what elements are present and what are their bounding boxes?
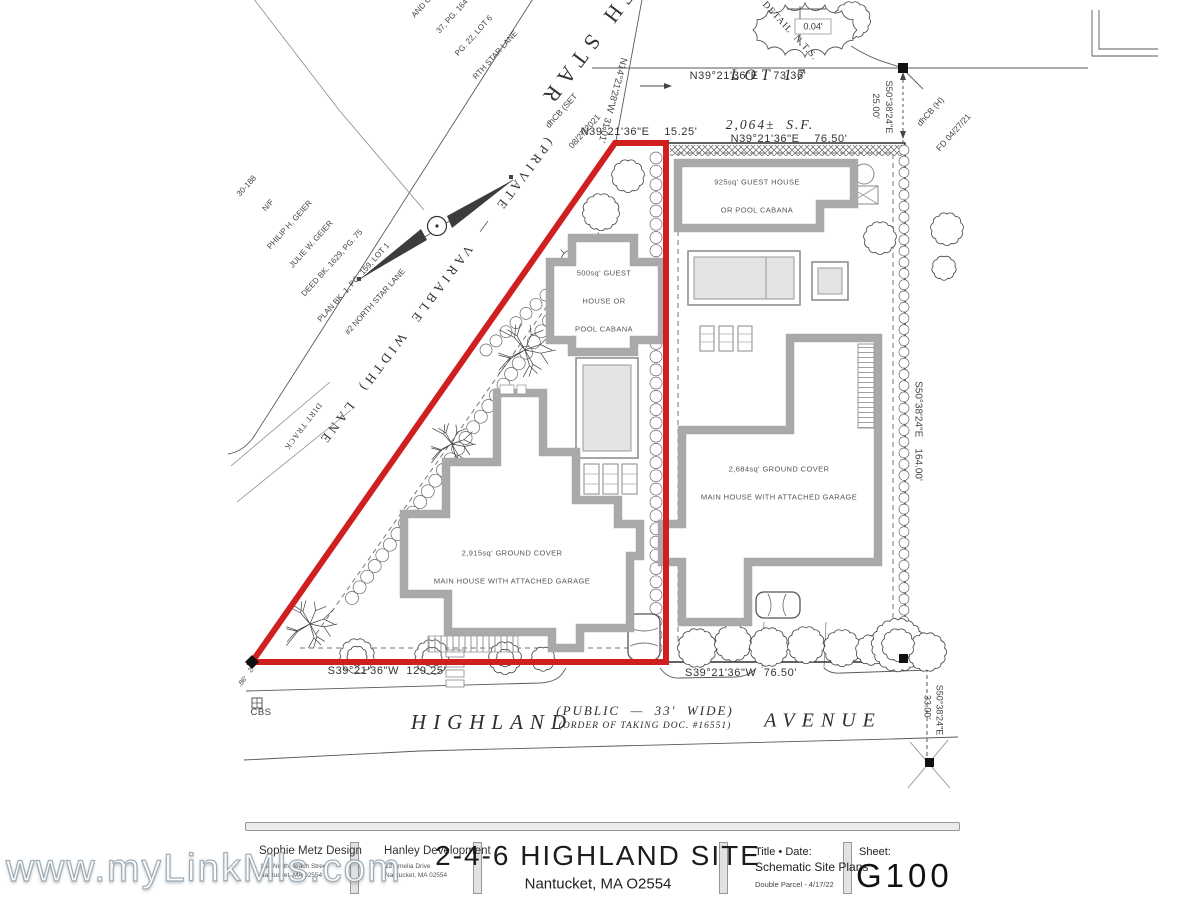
- highland-taking-note: (ORDER OF TAKING DOC. #16551): [559, 722, 732, 732]
- bearing-right-upper: S50°38'24"E: [883, 80, 893, 133]
- tree-icon: [612, 160, 645, 193]
- stairs: [858, 344, 874, 428]
- bearing-bottom-left: S39°21'36"W 129.25': [328, 666, 447, 678]
- bearing-top-right: N39°21'36"E 76.50': [731, 134, 848, 146]
- main-right-line: MAIN HOUSE WITH ATTACHED GARAGE: [701, 492, 857, 501]
- lounge-chair: [738, 326, 752, 351]
- main-left-line: 2,915sq' GROUND COVER: [434, 548, 590, 557]
- bearing-top: N39°21'36"E 73.36': [690, 71, 807, 83]
- main-house-left-label: 2,915sq' GROUND COVER MAIN HOUSE WITH AT…: [434, 530, 590, 605]
- highland-width-note: (PUBLIC — 33' WIDE): [556, 704, 734, 718]
- lot17-area: 2,064± S.F.: [726, 118, 815, 132]
- dist-right-upper: 25.00': [870, 93, 880, 119]
- tree-icon: [932, 256, 956, 280]
- watermark: www.myLinkMls.com: [6, 847, 402, 891]
- title-date-line2: Double Parcel - 4/17/22: [755, 880, 834, 889]
- tree-icon: [583, 194, 620, 231]
- detail-dimension: 0.04': [803, 22, 822, 31]
- walk-pad: [446, 680, 464, 687]
- guest-left-line: POOL CABANA: [575, 324, 633, 333]
- neighbor-west-line: JULIE W. GEIER: [273, 203, 349, 286]
- title-date-label: Title • Date:: [755, 846, 812, 858]
- lounge-chair: [700, 326, 714, 351]
- titleblock-top-bar: [245, 822, 960, 831]
- parking-strip: [428, 636, 518, 652]
- lounge-chair: [719, 326, 733, 351]
- title-date-line1: Schematic Site Plans: [755, 860, 868, 874]
- monument-set-line1: dhCB (SET: [543, 91, 579, 130]
- guest-right-line: OR POOL CABANA: [714, 205, 800, 214]
- bearing-right-lower: S50°38'24"E: [934, 685, 943, 736]
- tree-icon: [824, 630, 861, 667]
- lot17-block: LOT 17 2,064± S.F.: [726, 34, 815, 166]
- main-left-line: MAIN HOUSE WITH ATTACHED GARAGE: [434, 576, 590, 585]
- guest-house-right-label: 925sq' GUEST HOUSE OR POOL CABANA: [714, 159, 800, 234]
- patio-chair: [584, 464, 599, 494]
- cbs-label: CBS: [250, 708, 271, 718]
- dist-right-lower: 33.00': [922, 695, 931, 719]
- patio-chair: [622, 464, 637, 494]
- patio-chair: [603, 464, 618, 494]
- main-house-right-label: 2,684sq' GROUND COVER MAIN HOUSE WITH AT…: [701, 446, 857, 521]
- monument-found-line1: dhCB (H): [911, 91, 950, 133]
- guest-left-line: HOUSE OR: [575, 296, 633, 305]
- monument-set-line2: 08/27/2021: [566, 112, 602, 151]
- tree-icon: [864, 222, 897, 255]
- car-icon: [756, 592, 800, 618]
- main-right-line: 2,684sq' GROUND COVER: [701, 464, 857, 473]
- neighbor-west-line: DEED BK. 1629, PG. 75: [294, 222, 370, 305]
- highland-street-name: HIGHLAND: [411, 711, 573, 733]
- tree-icon: [715, 625, 752, 662]
- neighbor-west-line: PLAN BK. 1, PG. 159, LOT 1: [316, 241, 392, 324]
- site-plan-sheet: NORTH STAR (PRIVATE — VARIABLE WIDTH) LA…: [0, 0, 1200, 900]
- tree-icon: [750, 628, 789, 666]
- neighbor-west-line: PHILIP H. GEIER: [252, 183, 328, 266]
- avenue-street-name: AVENUE: [764, 711, 882, 732]
- neighbor-west-line: N/F: [230, 164, 306, 247]
- guest-left-line: 500sq' GUEST: [575, 268, 633, 277]
- guest-right-line: 925sq' GUEST HOUSE: [714, 177, 800, 186]
- walk-pad: [446, 670, 464, 677]
- project-location: Nantucket, MA O2554: [525, 876, 672, 893]
- project-title: 2-4-6 HIGHLAND SITE: [435, 840, 761, 872]
- bearing-right-mid: S50°38'24"E 164.00': [912, 381, 923, 481]
- sheet-number: G100: [856, 857, 953, 895]
- monument-found-line2: FD 04/27/21: [934, 111, 973, 153]
- tree-icon: [677, 629, 716, 667]
- guest-house-left-label: 500sq' GUEST HOUSE OR POOL CABANA: [575, 249, 633, 352]
- tree-icon: [931, 213, 964, 246]
- tree-icon: [788, 627, 825, 664]
- bearing-bottom-right: S39°21'36"W 76.50': [685, 668, 797, 680]
